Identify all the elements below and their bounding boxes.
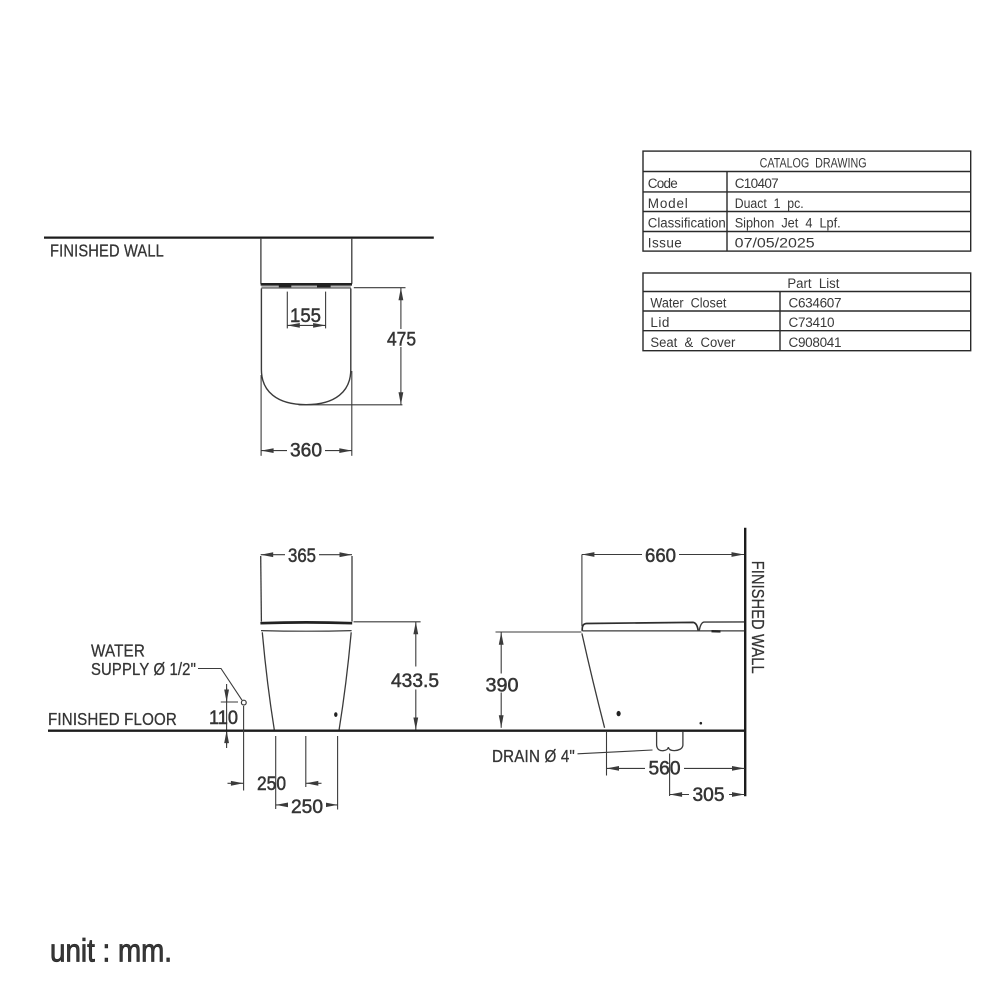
- svg-text:Duact 1 pc.: Duact 1 pc.: [735, 196, 804, 211]
- svg-text:Classification: Classification: [648, 216, 726, 231]
- svg-text:250: 250: [291, 797, 323, 818]
- svg-text:660: 660: [645, 546, 676, 567]
- svg-text:110: 110: [209, 708, 238, 729]
- svg-text:C73410: C73410: [789, 315, 835, 330]
- svg-text:433.5: 433.5: [391, 671, 439, 692]
- svg-text:560: 560: [649, 758, 681, 779]
- svg-text:CATALOG DRAWING: CATALOG DRAWING: [760, 156, 867, 171]
- svg-text:Water Closet: Water Closet: [650, 296, 726, 311]
- svg-text:155: 155: [290, 306, 321, 327]
- svg-text:390: 390: [486, 676, 519, 697]
- svg-text:Siphon Jet 4 Lpf.: Siphon Jet 4 Lpf.: [735, 216, 841, 231]
- svg-text:FINISHED WALL: FINISHED WALL: [50, 241, 164, 261]
- svg-text:360: 360: [290, 441, 322, 462]
- svg-text:SUPPLY Ø 1/2": SUPPLY Ø 1/2": [91, 659, 196, 679]
- svg-text:C908041: C908041: [789, 335, 842, 350]
- svg-text:Issue: Issue: [648, 235, 682, 250]
- svg-text:WATER: WATER: [91, 641, 145, 661]
- svg-text:C10407: C10407: [735, 176, 779, 191]
- svg-text:365: 365: [288, 546, 316, 567]
- svg-text:FINISHED WALL: FINISHED WALL: [748, 561, 768, 674]
- svg-text:DRAIN Ø 4": DRAIN Ø 4": [492, 746, 575, 766]
- svg-text:07/05/2025: 07/05/2025: [735, 235, 815, 250]
- svg-text:C634607: C634607: [789, 296, 842, 311]
- svg-text:FINISHED FLOOR: FINISHED FLOOR: [48, 709, 177, 729]
- svg-text:Model: Model: [648, 196, 688, 211]
- svg-text:Part List: Part List: [787, 276, 839, 291]
- svg-text:250: 250: [257, 774, 286, 795]
- svg-text:475: 475: [387, 329, 416, 350]
- svg-text:Code: Code: [648, 176, 678, 191]
- svg-text:305: 305: [693, 785, 725, 806]
- svg-text:unit : mm.: unit : mm.: [50, 933, 172, 969]
- svg-text:Lid: Lid: [650, 315, 669, 330]
- svg-text:Seat & Cover: Seat & Cover: [650, 335, 735, 350]
